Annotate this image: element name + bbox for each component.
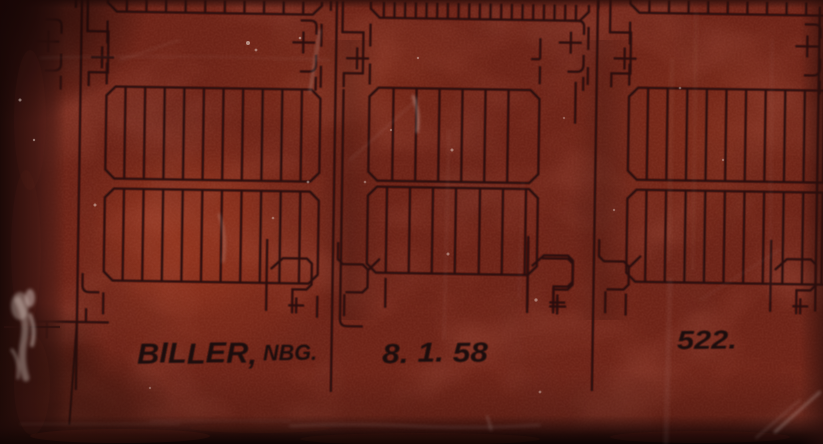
svg-text:NBG.: NBG. (263, 340, 317, 366)
svg-text:BILLER,: BILLER, (137, 336, 257, 372)
svg-text:8. 1. 58: 8. 1. 58 (382, 336, 489, 369)
svg-text:522.: 522. (677, 324, 737, 355)
